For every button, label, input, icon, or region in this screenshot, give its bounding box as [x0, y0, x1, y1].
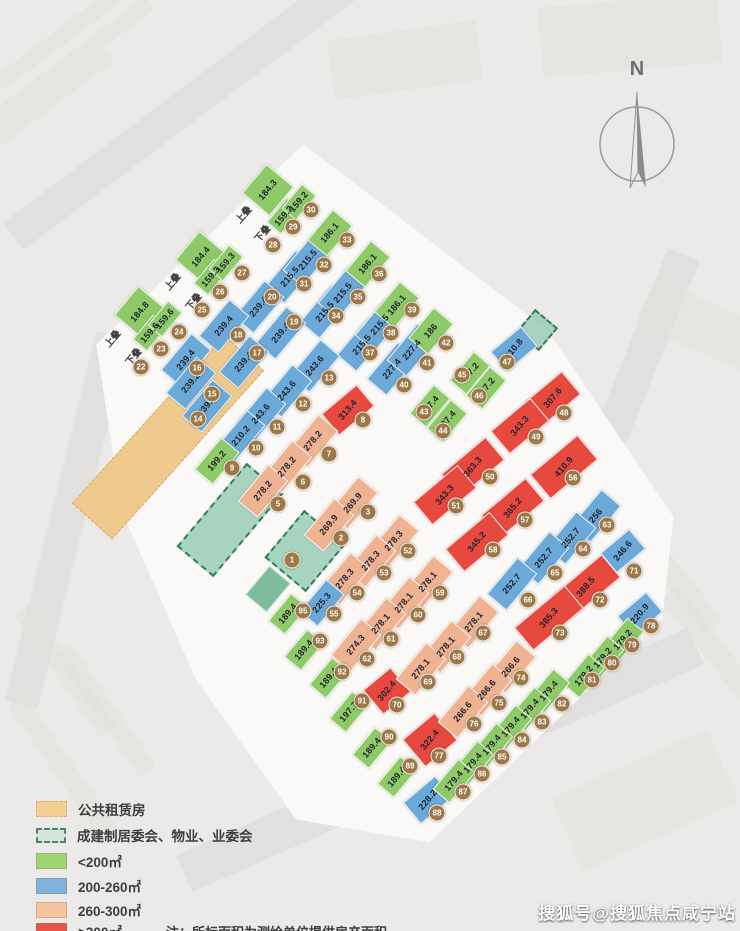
unit-number-badge: 28 — [265, 237, 282, 254]
unit-number-badge: 16 — [189, 360, 206, 377]
unit-number-badge: 54 — [349, 585, 366, 602]
unit-number-badge: 70 — [389, 697, 406, 714]
unit-number-badge: 81 — [584, 672, 601, 689]
unit-number-badge: 38 — [383, 325, 400, 342]
watermark: 搜狐号@搜狐焦点咸宁站 — [538, 899, 736, 924]
unit-number-badge: 76 — [466, 716, 483, 733]
unit-number-badge: 87 — [455, 784, 472, 801]
unit-number-badge: 33 — [339, 232, 356, 249]
unit-number-badge: 90 — [381, 729, 398, 746]
unit-number-badge: 77 — [431, 748, 448, 765]
unit-number-badge: 60 — [410, 607, 427, 624]
unit-number-badge: 58 — [485, 542, 502, 559]
unit-number-badge: 32 — [316, 257, 333, 274]
unit-number-badge: 13 — [321, 370, 338, 387]
unit-number-badge: 37 — [362, 345, 379, 362]
unit-number-badge: 11 — [269, 419, 286, 436]
unit-number-badge: 91 — [354, 693, 371, 710]
unit-number-badge: 66 — [520, 592, 537, 609]
unit-number-badge: 9 — [224, 460, 241, 477]
legend-note: 注：所标面积为测绘单位提供房产面积。 — [166, 922, 400, 931]
legend-item-260-300: 260-300㎡ — [36, 901, 141, 919]
unit-number-badge: 89 — [402, 758, 419, 775]
legend-item-gt300: >300㎡ — [36, 922, 122, 931]
unit-number-badge: 83 — [534, 714, 551, 731]
unit-number-badge: 30 — [303, 202, 320, 219]
legend-label: >300㎡ — [78, 921, 122, 931]
unit-number-badge: 80 — [604, 655, 621, 672]
unit-number-badge: 47 — [499, 354, 516, 371]
legend-item-committee: 成建制居委会、物业、业委会 — [36, 826, 253, 844]
legend-swatch-committee — [36, 828, 66, 843]
unit-number-badge: 61 — [383, 631, 400, 648]
legend-swatch-public-rental — [36, 801, 67, 817]
unit-number-badge: 20 — [264, 289, 281, 306]
legend-label: 成建制居委会、物业、业委会 — [77, 825, 253, 845]
north-label: N — [594, 58, 680, 81]
unit-number-badge: 26 — [212, 284, 229, 301]
unit-number-badge: 69 — [420, 674, 437, 691]
unit-number-badge: 25 — [194, 302, 211, 319]
unit-number-badge: 82 — [554, 696, 571, 713]
legend-swatch-lt200 — [36, 853, 67, 869]
unit-number-badge: 17 — [249, 345, 266, 362]
unit-number-badge: 49 — [528, 429, 545, 446]
unit-number-badge: 29 — [285, 219, 302, 236]
unit-number-badge: 56 — [565, 470, 582, 487]
unit-number-badge: 45 — [454, 367, 471, 384]
unit-number-badge: 68 — [449, 649, 466, 666]
unit-number-badge: 55 — [326, 606, 343, 623]
unit-number-badge: 86 — [474, 766, 491, 783]
unit-number-badge: 24 — [171, 324, 188, 341]
unit-number-badge: 88 — [429, 805, 446, 822]
unit-number-badge: 53 — [376, 565, 393, 582]
unit-number-badge: 78 — [643, 618, 660, 635]
unit-number-badge: 8 — [355, 412, 372, 429]
unit-number-badge: 31 — [296, 276, 313, 293]
unit-number-badge: 72 — [592, 592, 609, 609]
unit-number-badge: 40 — [396, 377, 413, 394]
legend-item-public-rental: 公共租赁房 — [36, 800, 146, 818]
legend-label: 260-300㎡ — [78, 900, 141, 920]
unit-number-badge: 65 — [547, 565, 564, 582]
unit-number-badge: 3 — [360, 504, 377, 521]
unit-number-badge: 14 — [190, 411, 207, 428]
unit-number-badge: 51 — [448, 498, 465, 515]
unit-number-badge: 59 — [432, 585, 449, 602]
unit-number-badge: 23 — [153, 341, 170, 358]
unit-number-badge: 71 — [626, 563, 643, 580]
unit-number-badge: 85 — [494, 749, 511, 766]
unit-number-badge: 73 — [552, 625, 569, 642]
unit-number-badge: 57 — [517, 512, 534, 529]
unit-number-badge: 95 — [295, 603, 312, 620]
unit-number-badge: 39 — [404, 302, 421, 319]
unit-number-badge: 15 — [204, 386, 221, 403]
unit-number-badge: 2 — [333, 530, 350, 547]
unit-number-badge: 62 — [359, 651, 376, 668]
unit-number-badge: 36 — [371, 266, 388, 283]
unit-number-badge: 50 — [482, 469, 499, 486]
unit-number-badge: 63 — [599, 517, 616, 534]
unit-number-badge: 74 — [513, 670, 530, 687]
unit-number-badge: 10 — [248, 440, 265, 457]
legend-label: 公共租赁房 — [78, 799, 146, 819]
unit-number-badge: 5 — [270, 496, 287, 513]
site-plan: 184.3 159.2 159.2 184.4 159.3 159.3 184.… — [0, 0, 740, 931]
unit-number-badge: 92 — [334, 664, 351, 681]
unit-number-badge: 79 — [624, 637, 641, 654]
unit-number-badge: 64 — [575, 541, 592, 558]
legend-item-200-260: 200-260㎡ — [36, 877, 141, 895]
unit-number-badge: 93 — [312, 633, 329, 650]
unit-number-badge: 42 — [438, 335, 455, 352]
unit-number-badge: 22 — [133, 359, 150, 376]
unit-number-badge: 6 — [295, 474, 312, 491]
legend-item-lt200: <200㎡ — [36, 852, 122, 870]
unit-number-badge: 52 — [400, 543, 417, 560]
legend-label: 200-260㎡ — [78, 876, 141, 896]
unit-number-badge: 35 — [350, 289, 367, 306]
unit-number-badge: 27 — [234, 265, 251, 282]
unit-number-badge: 41 — [419, 355, 436, 372]
unit-number-badge: 7 — [321, 446, 338, 463]
unit-number-badge: 1 — [284, 552, 301, 569]
legend-swatch-260-300 — [36, 902, 67, 918]
legend-label: <200㎡ — [78, 851, 122, 871]
unit-number-badge: 46 — [471, 388, 488, 405]
legend-swatch-200-260 — [36, 878, 67, 894]
unit-number-badge: 34 — [328, 308, 345, 325]
unit-number-badge: 18 — [230, 327, 247, 344]
unit-number-badge: 12 — [295, 396, 312, 413]
compass-icon — [594, 82, 680, 198]
unit-number-badge: 67 — [475, 625, 492, 642]
unit-number-badge: 75 — [491, 695, 508, 712]
unit-number-badge: 43 — [416, 404, 433, 421]
unit-number-badge: 19 — [286, 314, 303, 331]
unit-number-badge: 44 — [435, 423, 452, 440]
legend-swatch-gt300 — [36, 923, 67, 931]
unit-number-badge: 84 — [514, 732, 531, 749]
north-arrow: N — [594, 58, 680, 198]
unit-number-badge: 48 — [556, 405, 573, 422]
